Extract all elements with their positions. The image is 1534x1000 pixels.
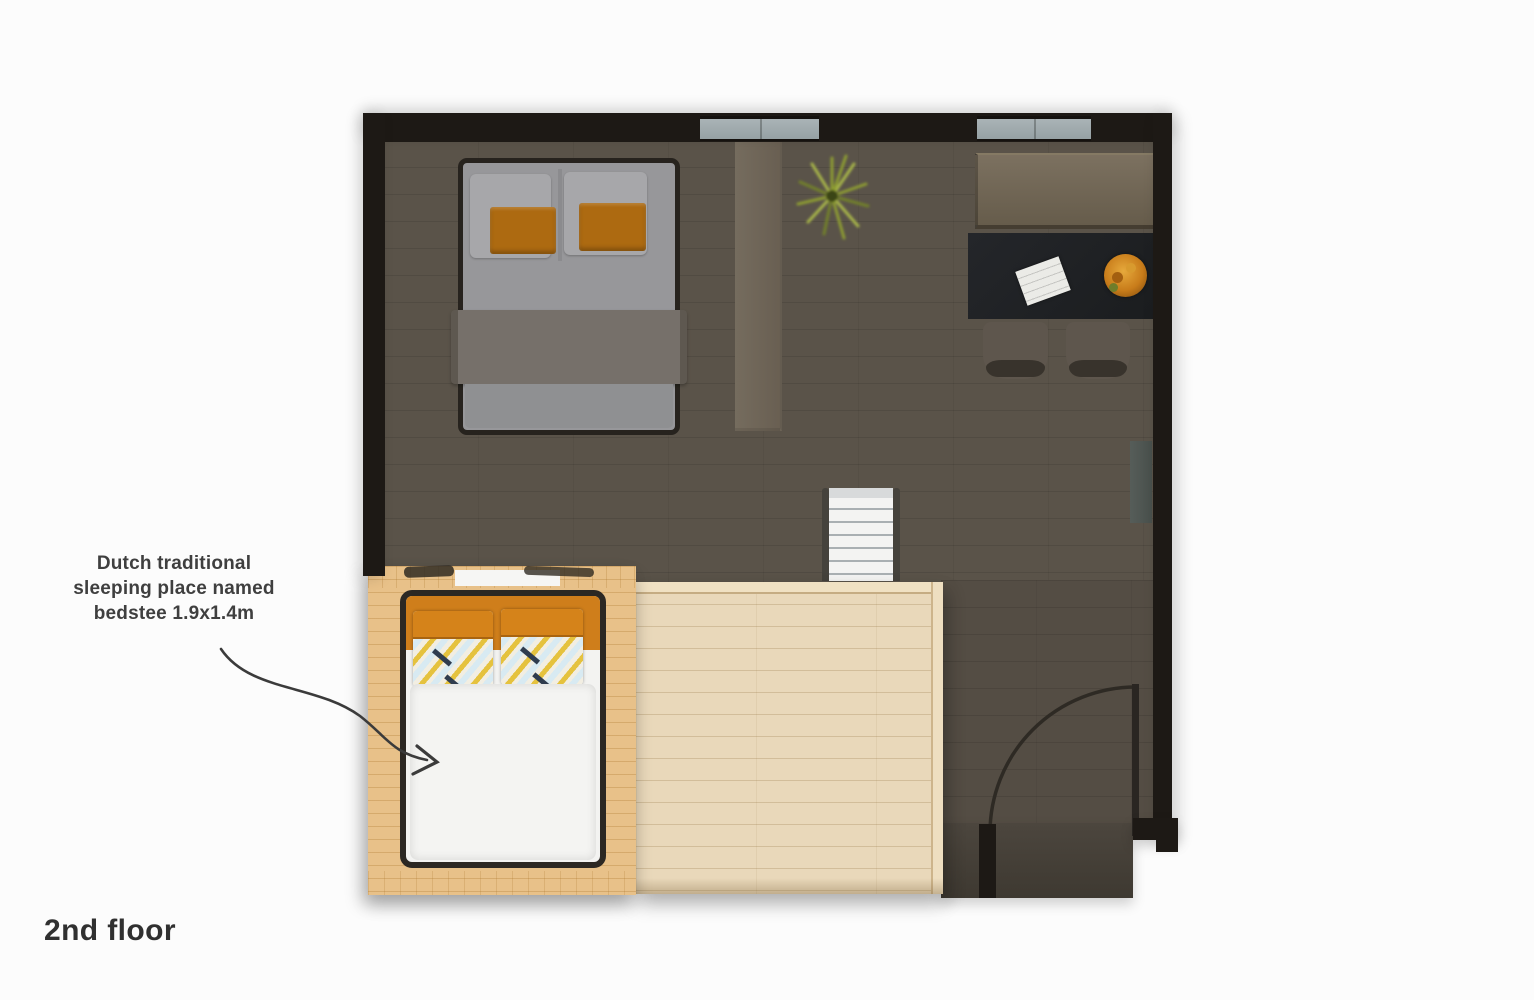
- bed-foot-duvet: [465, 384, 673, 428]
- platform-edge-shadow: [636, 878, 943, 894]
- stair-top-step: [829, 488, 893, 498]
- floor-plan-page: Dutch traditional sleeping place named b…: [0, 0, 1534, 1000]
- floor-label: 2nd floor: [44, 914, 176, 948]
- bedstee-wood-box: [368, 566, 636, 895]
- counter: [975, 153, 1153, 229]
- stairs: [822, 488, 900, 581]
- platform-trim: [636, 582, 943, 594]
- bedstee-duvet: [410, 684, 596, 860]
- pillow-divider: [558, 169, 562, 261]
- fruit: [1126, 263, 1136, 273]
- wall-bottom-right: [1133, 818, 1178, 840]
- fruit-bowl: [1104, 254, 1147, 297]
- bedstee-shadow-mark: [404, 565, 454, 578]
- bedstee-pillow: [413, 611, 493, 687]
- annotation-line: bedstee 1.9x1.4m: [44, 601, 304, 626]
- radiator: [1130, 441, 1152, 523]
- platform-trim: [931, 582, 943, 894]
- entry-nook-floor: [941, 823, 1133, 898]
- bedstee-bed: [400, 590, 606, 868]
- annotation-line: Dutch traditional: [44, 551, 304, 576]
- door-jamb-wall: [979, 824, 996, 898]
- dark-wood-floor-right: [941, 580, 1153, 837]
- wall-left: [363, 113, 385, 576]
- wall-corner-foot: [1156, 840, 1178, 852]
- wall-right: [1153, 113, 1172, 838]
- support-beam: [735, 141, 782, 431]
- stair-rail: [822, 488, 829, 581]
- window: [700, 116, 819, 141]
- wood-platform: [636, 582, 943, 894]
- gray-blanket: [451, 310, 687, 384]
- door-leaf: [1132, 684, 1139, 836]
- window: [977, 116, 1091, 141]
- bedstee-plank-strip: [368, 871, 636, 895]
- fruit: [1112, 272, 1123, 283]
- desk-chair: [983, 322, 1048, 379]
- bedstee-annotation: Dutch traditional sleeping place named b…: [44, 551, 304, 626]
- bedstee-pillow: [501, 609, 583, 685]
- annotation-line: sleeping place named: [44, 576, 304, 601]
- double-bed: [458, 158, 680, 435]
- floor-plan: [363, 112, 1178, 898]
- plant-icon: [788, 150, 874, 242]
- stair-rail: [893, 488, 900, 581]
- desk-chair: [1066, 322, 1130, 379]
- stair-treads: [829, 497, 893, 581]
- orange-cushion: [490, 207, 556, 254]
- fruit-leaf: [1109, 283, 1118, 292]
- orange-cushion: [579, 203, 646, 251]
